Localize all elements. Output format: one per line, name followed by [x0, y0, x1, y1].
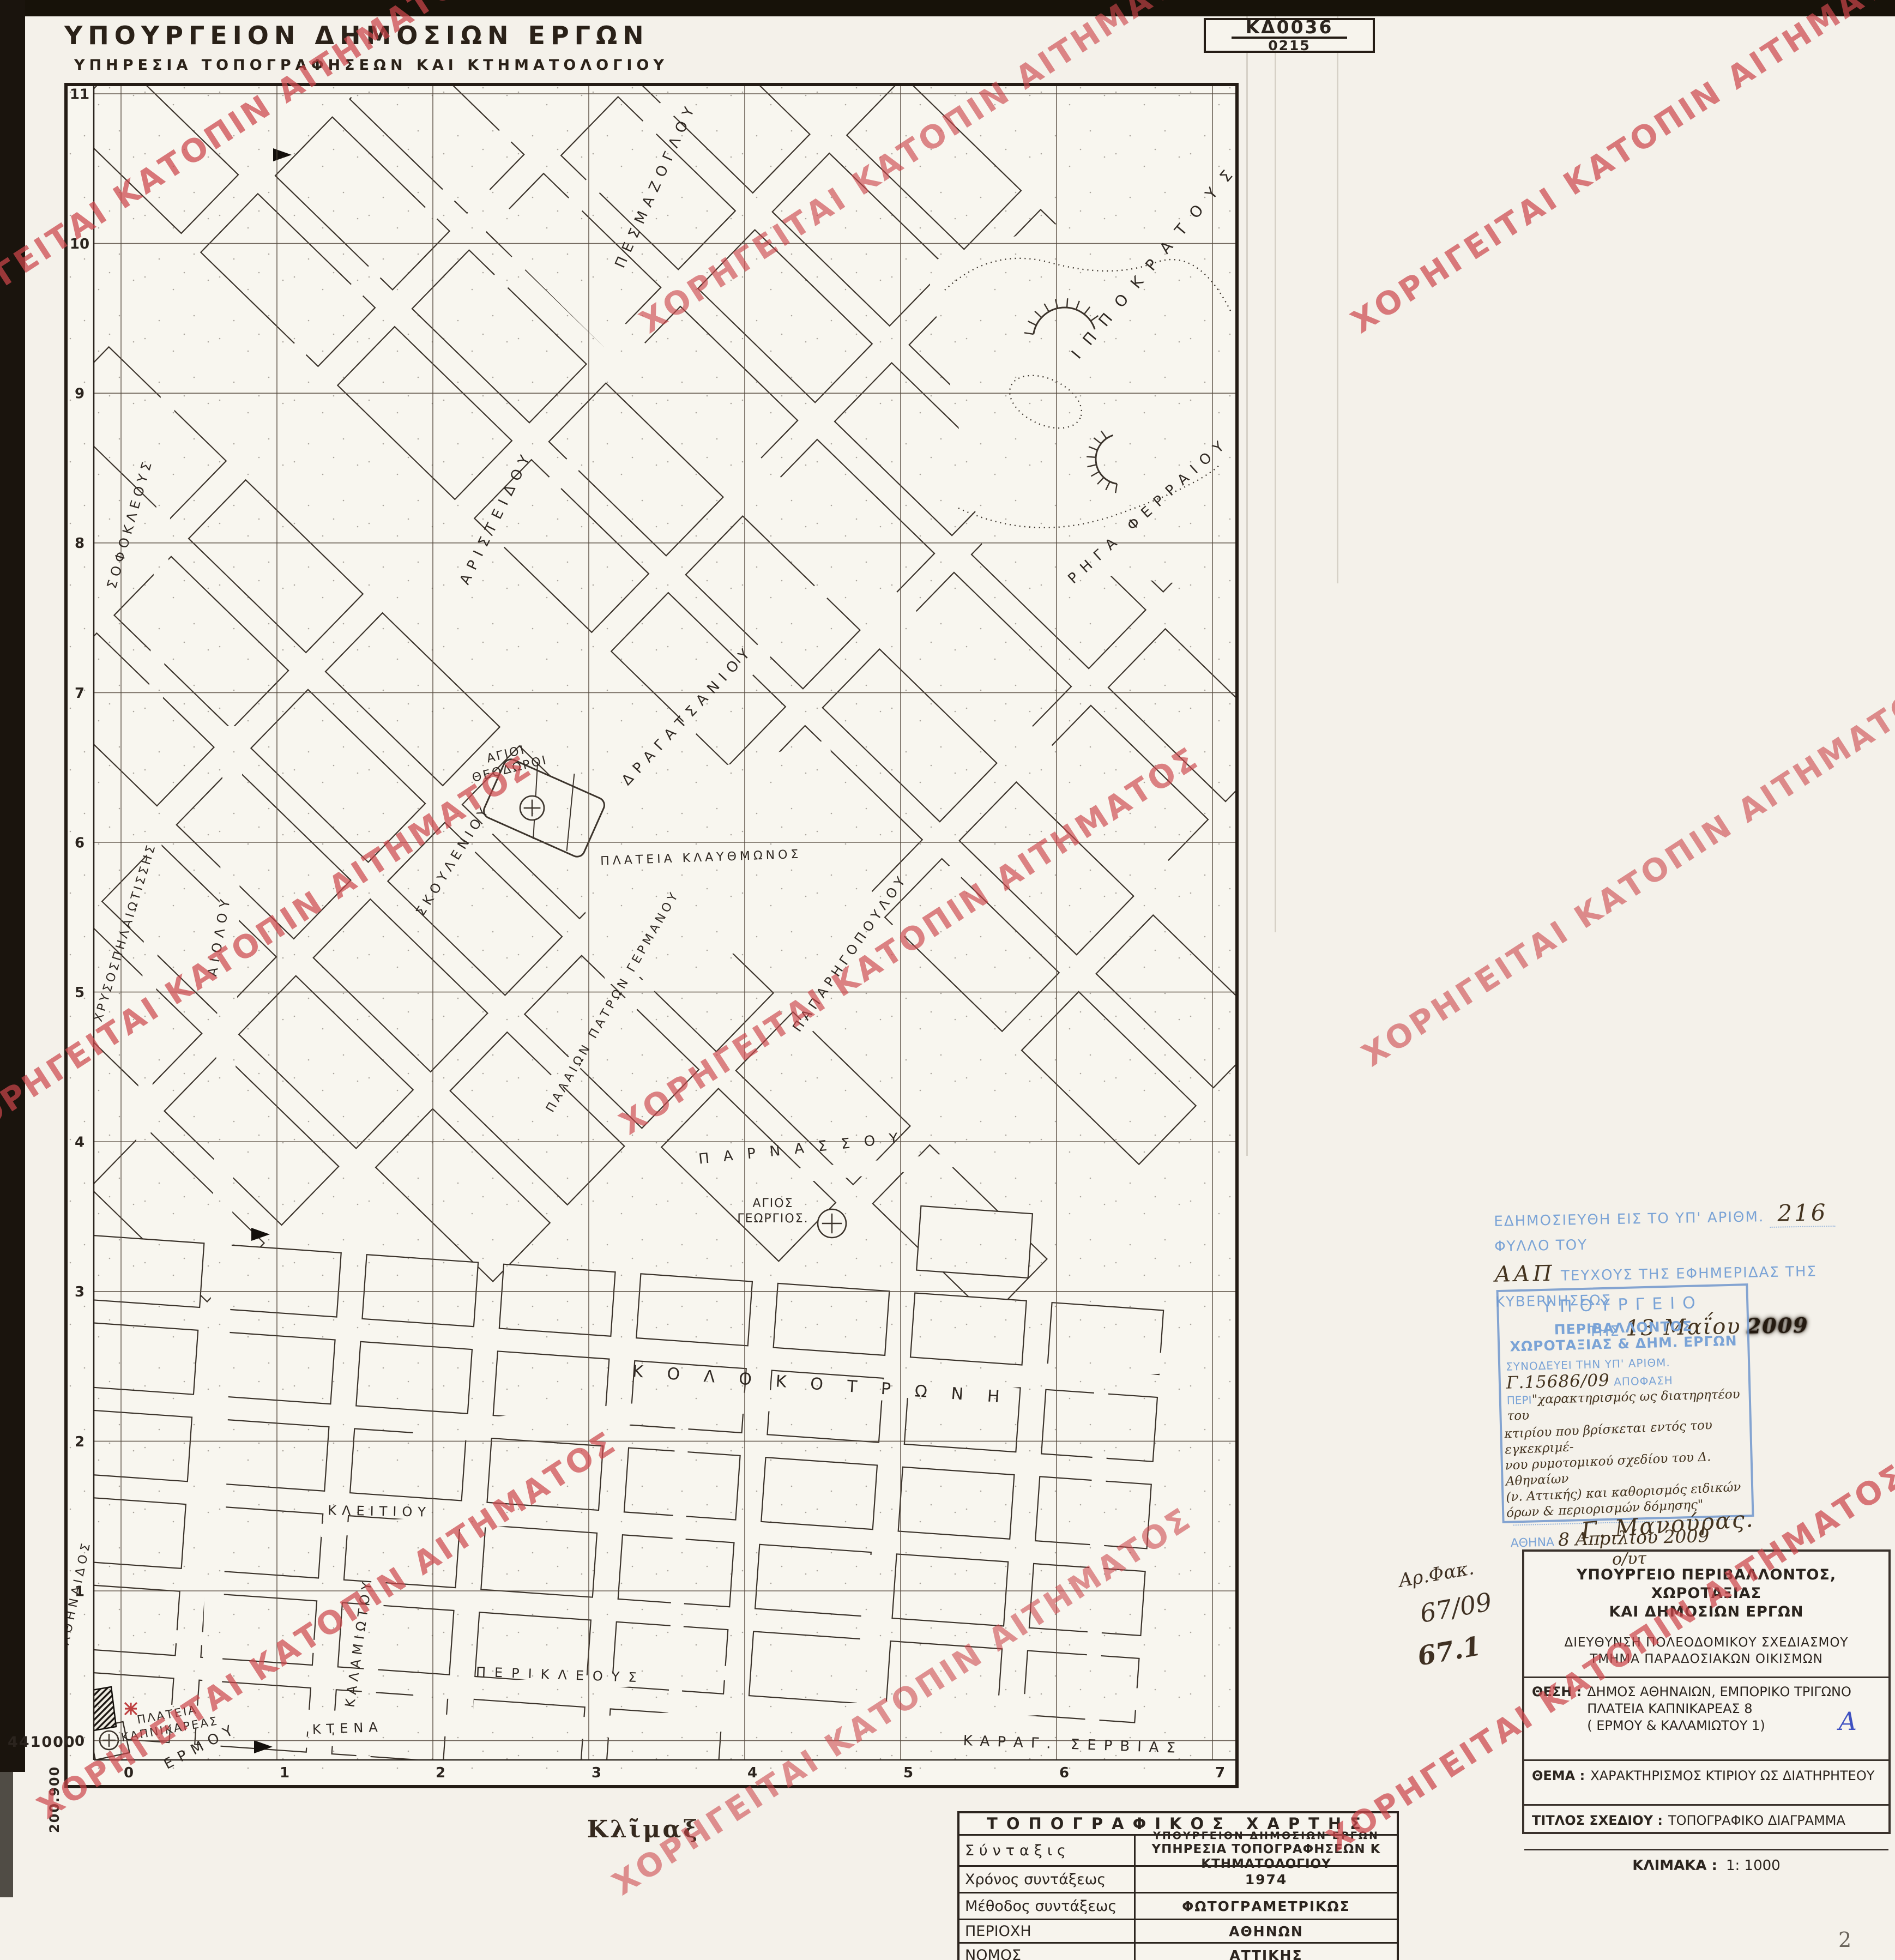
handwritten-letter-mark: Α [1839, 1706, 1857, 1736]
location-line: ΔΗΜΟΣ ΑΘΗΝΑΙΩΝ, ΕΜΠΟΡΙΚΟ ΤΡΙΓΩΝΟ [1587, 1684, 1851, 1699]
title-block-ministry: ΚΑΙ ΔΗΜΟΣΙΩΝ ΕΡΓΩΝ [1524, 1603, 1888, 1621]
topographic-map: 0123456789101101234567ΙΠΠΟΚΡΑΤΟΥΣΡΗΓΑ ΦΕ… [64, 83, 1239, 1788]
scan-edge-left [0, 0, 25, 1772]
grid-number: 3 [75, 1284, 85, 1300]
grid-number: 5 [75, 985, 85, 1001]
title-block-directorate-line: ΤΜΗΜΑ ΠΑΡΑΔΟΣΙΑΚΩΝ ΟΙΚΙΣΜΩΝ [1524, 1651, 1888, 1667]
easting-coordinate: 441000 [8, 1734, 76, 1751]
table-label: Μέθοδος συντάξεως [959, 1893, 1136, 1919]
grid-number: 3 [592, 1765, 601, 1781]
subject-value: ΧΑΡΑΚΤΗΡΙΣΜΟΣ ΚΤΙΡΙΟΥ ΩΣ ΔΙΑΤΗΡΗΤΕΟΥ [1590, 1768, 1874, 1798]
grid-number: 8 [75, 535, 85, 552]
location-line: ΠΛΑΤΕΙΑ ΚΑΠΝΙΚΑΡΕΑΣ 8 [1587, 1701, 1752, 1716]
street-label: ΚΛΕΙΤΙΟΥ [328, 1503, 431, 1519]
ministry-decision-stamp: ΥΠΟΥΡΓΕΙΟ ΠΕΡΙΒΑΛΛΟΝΤΟΣ ΧΩΡΟΤΑΞΙΑΣ & ΔΗΜ… [1496, 1283, 1754, 1523]
watermark-text: ΧΟΡΗΓΕΙΤΑΙ ΚΑΤΟΠΙΝ ΑΙΤΗΜΑΤΟΣ [1344, 0, 1895, 341]
table-value: 1974 [1136, 1867, 1397, 1892]
stamp-city: ΑΘΗΝΑ [1510, 1535, 1554, 1550]
scan-edge-left-lower [0, 1772, 13, 1897]
grid-number: 6 [75, 835, 85, 851]
gazette-issue-handwritten: ΑΑΠ [1495, 1261, 1555, 1287]
title-block-directorate: ΔΙΕΥΘΥΝΣΗ ΠΟΛΕΟΔΟΜΙΚΟΥ ΣΧΕΔΙΑΣΜΟΥ ΤΜΗΜΑ … [1524, 1635, 1888, 1667]
grid-number: 7 [1215, 1765, 1225, 1781]
gazette-number-handwritten: 216 [1770, 1199, 1836, 1228]
location-line: ( ΕΡΜΟΥ & ΚΑΛΑΜΙΩΤΟΥ 1) [1587, 1718, 1765, 1733]
stamp-text: ΑΠΟΦΑΣΗ [1614, 1374, 1673, 1389]
grid-number: 2 [75, 1434, 85, 1450]
file-note-line: Αρ.Φακ. [1397, 1557, 1487, 1590]
table-label: ΠΕΡΙΟΧΗ [959, 1920, 1136, 1942]
grid-number: 4 [75, 1135, 85, 1151]
scanned-topographic-sheet: ΥΠΟΥΡΓΕΙΟΝ ΔΗΜΟΣΙΩΝ ΕΡΓΩΝ ΥΠΗΡΕΣΙΑ ΤΟΠΟΓ… [0, 0, 1895, 1960]
grid-number: 1 [280, 1765, 289, 1781]
table-label: Χρόνος συντάξεως [959, 1867, 1136, 1892]
file-number-note: Αρ.Φακ. 67/09 67.1 [1397, 1557, 1501, 1670]
stamp-text: ΠΕΡΙ [1506, 1393, 1531, 1407]
scan-crease-line [1337, 16, 1338, 583]
scale-value: 1: 1000 [1726, 1858, 1781, 1874]
drawing-title-value: ΤΟΠΟΓΡΑΦΙΚΟ ΔΙΑΓΡΑΜΜΑ [1668, 1812, 1845, 1842]
grid-number: 11 [70, 86, 89, 102]
page-number: 2 [1838, 1928, 1851, 1952]
grid-number: 10 [70, 236, 89, 252]
grid-number: 4 [747, 1765, 757, 1781]
street-label: ΚΤΕΝΑ [312, 1720, 383, 1738]
title-block-ministry: ΥΠΟΥΡΓΕΙΟ ΠΕΡΙΒΑΛΛΟΝΤΟΣ, ΧΩΡΟΤΑΞΙΑΣ [1524, 1566, 1888, 1603]
scan-crease-line [1246, 16, 1248, 1156]
grid-number: 7 [75, 685, 85, 702]
location-value: ΔΗΜΟΣ ΑΘΗΝΑΙΩΝ, ΕΜΠΟΡΙΚΟ ΤΡΙΓΩΝΟ ΠΛΑΤΕΙΑ… [1587, 1684, 1851, 1734]
sheet-code: ΚΔ0036 [1232, 18, 1348, 39]
watermark-text: ΧΟΡΗΓΕΙΤΑΙ ΚΑΤΟΠΙΝ ΑΙΤΗΜΑΤΟΣ [1355, 671, 1895, 1074]
ministry-header: ΥΠΟΥΡΓΕΙΟΝ ΔΗΜΟΣΙΩΝ ΕΡΓΩΝ [64, 21, 649, 50]
subject-label: ΘΕΜΑ : [1532, 1768, 1585, 1798]
file-note-line: 67.1 [1416, 1630, 1501, 1669]
grid-number: 0 [124, 1765, 134, 1781]
drawing-title-label: ΤΙΤΛΟΣ ΣΧΕΔΙΟΥ : [1532, 1812, 1663, 1842]
grid-number: 6 [1059, 1765, 1069, 1781]
northing-coordinate: 200.900 [47, 1766, 62, 1833]
gazette-text: ΕΔΗΜΟΣΙΕΥΘΗ ΕΙΣ ΤΟ ΥΠ' ΑΡΙΘΜ. [1494, 1209, 1764, 1230]
grid-number: 5 [903, 1765, 913, 1781]
grid-number: 2 [436, 1765, 445, 1781]
service-header: ΥΠΗΡΕΣΙΑ ΤΟΠΟΓΡΑΦΗΣΕΩΝ ΚΑΙ ΚΤΗΜΑΤΟΛΟΓΙΟΥ [74, 57, 668, 74]
file-note-line: 67/09 [1418, 1589, 1494, 1626]
gazette-text: ΦΥΛΛΟ ΤΟΥ [1494, 1237, 1588, 1255]
table-value: ΦΩΤΟΓΡΑΜΕΤΡΙΚΩΣ [1136, 1893, 1397, 1919]
table-value: ΑΤΤΙΚΗΣ [1136, 1944, 1397, 1960]
scale-caption: Κλῖμαξ [556, 1816, 731, 1843]
sheet-code-box: ΚΔ0036 0215 [1204, 18, 1375, 53]
table-label: ΝΟΜΟΣ [959, 1944, 1136, 1960]
gazette-year-scribble: 2009 [1746, 1312, 1809, 1338]
stamp-decision-number-handwritten: Γ.15686/09 [1506, 1371, 1610, 1393]
sheet-subcode: 0215 [1268, 39, 1311, 53]
scan-edge-top [0, 0, 1895, 16]
table-label: Σύνταξις [959, 1836, 1136, 1865]
title-block-directorate-line: ΔΙΕΥΘΥΝΣΗ ΠΟΛΕΟΔΟΜΙΚΟΥ ΣΧΕΔΙΑΣΜΟΥ [1524, 1635, 1888, 1651]
location-label: ΘΕΣΗ : [1532, 1684, 1582, 1734]
table-value: ΥΠΟΥΡΓΕΙΟΝ ΔΗΜΟΣΙΩΝ ΕΡΓΩΝ [1153, 1830, 1379, 1842]
grid-number: 0 [75, 1733, 85, 1750]
map-info-table: ΤΟΠΟΓΡΑΦΙΚΟΣ ΧΑΡΤΗΣ Σύνταξις ΥΠΟΥΡΓΕΙΟΝ … [957, 1811, 1399, 1960]
table-value: ΑΘΗΝΩΝ [1136, 1920, 1397, 1942]
drawing-title-block: ΥΠΟΥΡΓΕΙΟ ΠΕΡΙΒΑΛΛΟΝΤΟΣ, ΧΩΡΟΤΑΞΙΑΣ ΚΑΙ … [1522, 1549, 1891, 1834]
grid-number: 9 [75, 386, 85, 402]
scan-crease-line [1275, 16, 1276, 932]
stamp-ministry: ΥΠΟΥΡΓΕΙΟ [1504, 1292, 1741, 1317]
scale-label: ΚΛΙΜΑΚΑ : [1632, 1858, 1717, 1874]
stamp-department: ΠΕΡΙΒΑΛΛΟΝΤΟΣ ΧΩΡΟΤΑΞΙΑΣ & ΔΗΜ. ΕΡΓΩΝ [1505, 1317, 1742, 1354]
